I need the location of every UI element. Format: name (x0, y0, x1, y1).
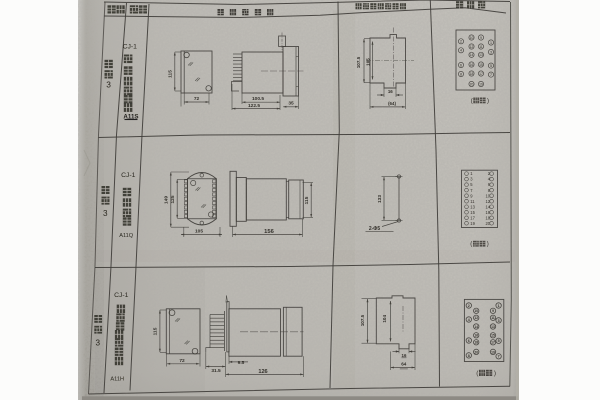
svg-text:19: 19 (479, 82, 483, 86)
svg-text:11: 11 (479, 45, 483, 49)
svg-text:A11H: A11H (110, 376, 124, 382)
svg-text:16: 16 (474, 334, 478, 338)
svg-text:3: 3 (103, 209, 108, 218)
svg-text:72: 72 (194, 96, 200, 102)
svg-text:1: 1 (498, 304, 500, 308)
svg-text:64: 64 (401, 362, 407, 367)
svg-text:17: 17 (479, 72, 483, 76)
svg-text:6: 6 (468, 339, 470, 343)
svg-text:133: 133 (377, 195, 383, 203)
svg-text:): ) (487, 98, 489, 104)
svg-text:17: 17 (470, 215, 475, 220)
svg-text:115: 115 (304, 196, 310, 204)
svg-text:13: 13 (491, 325, 495, 329)
svg-text:3: 3 (106, 80, 111, 90)
svg-text:9: 9 (492, 309, 494, 313)
svg-text:CJ-1: CJ-1 (121, 172, 136, 179)
svg-text:2-Φ5: 2-Φ5 (369, 226, 381, 232)
svg-text:125: 125 (170, 195, 176, 203)
svg-text:126: 126 (258, 369, 267, 375)
svg-text:12: 12 (470, 45, 474, 49)
svg-text:20: 20 (474, 350, 478, 354)
svg-text:A11Q: A11Q (119, 233, 134, 239)
svg-text:10: 10 (470, 36, 474, 40)
svg-text:115: 115 (167, 70, 173, 78)
svg-text:5: 5 (498, 339, 500, 343)
svg-text:13: 13 (479, 53, 483, 57)
svg-text:12: 12 (474, 316, 478, 320)
svg-text:107.5: 107.5 (356, 56, 361, 68)
svg-text:15: 15 (470, 210, 475, 215)
svg-text:31.5: 31.5 (211, 368, 221, 374)
svg-text:16: 16 (470, 63, 474, 67)
svg-text:13: 13 (470, 204, 475, 209)
svg-text:(: ( (471, 98, 473, 104)
svg-text:15: 15 (491, 334, 495, 338)
svg-text:14: 14 (474, 325, 478, 329)
svg-text:100.5: 100.5 (252, 96, 264, 102)
svg-text:105: 105 (365, 58, 370, 66)
svg-text:(: ( (470, 242, 472, 248)
svg-text:122.5: 122.5 (248, 103, 260, 109)
svg-text:7: 7 (490, 73, 492, 77)
svg-text:1: 1 (490, 41, 492, 45)
svg-text:149: 149 (164, 196, 170, 204)
svg-text:CJ-1: CJ-1 (123, 44, 138, 51)
svg-text:16: 16 (388, 89, 393, 94)
svg-text:9: 9 (480, 36, 482, 40)
svg-text:10: 10 (474, 309, 478, 313)
svg-text:9.5: 9.5 (238, 360, 245, 366)
svg-text:5: 5 (490, 64, 492, 68)
svg-text:2: 2 (468, 304, 470, 308)
svg-text:14: 14 (470, 53, 474, 57)
svg-text:15: 15 (479, 63, 483, 67)
svg-text:2: 2 (460, 40, 462, 44)
svg-text:19: 19 (470, 221, 475, 226)
svg-text:72: 72 (179, 358, 185, 364)
svg-text:): ) (494, 370, 496, 377)
svg-text:107.5: 107.5 (360, 314, 365, 326)
svg-text:18: 18 (474, 341, 478, 345)
svg-text:3: 3 (490, 50, 492, 54)
svg-text:): ) (487, 242, 489, 248)
svg-text:35: 35 (288, 101, 294, 107)
svg-text:16: 16 (402, 353, 407, 358)
svg-text:11: 11 (470, 199, 475, 204)
svg-text:11: 11 (491, 316, 495, 320)
svg-text:CJ-1: CJ-1 (114, 292, 129, 299)
svg-text:(64): (64) (388, 101, 396, 106)
svg-text:8: 8 (460, 72, 462, 76)
svg-text:105: 105 (195, 229, 203, 235)
svg-text:115: 115 (153, 327, 159, 335)
svg-text:3: 3 (96, 338, 101, 347)
svg-text:4: 4 (468, 318, 470, 322)
svg-text:3: 3 (498, 319, 500, 323)
svg-text:8: 8 (468, 354, 470, 358)
svg-text:17: 17 (491, 341, 495, 345)
svg-text:156: 156 (264, 229, 274, 235)
svg-text:104: 104 (382, 315, 387, 323)
svg-text:20: 20 (470, 82, 474, 86)
svg-text:7: 7 (498, 355, 500, 359)
svg-text:19: 19 (491, 350, 495, 354)
svg-text:18: 18 (470, 72, 474, 76)
svg-text:4: 4 (460, 49, 462, 53)
svg-text:6: 6 (460, 63, 462, 67)
